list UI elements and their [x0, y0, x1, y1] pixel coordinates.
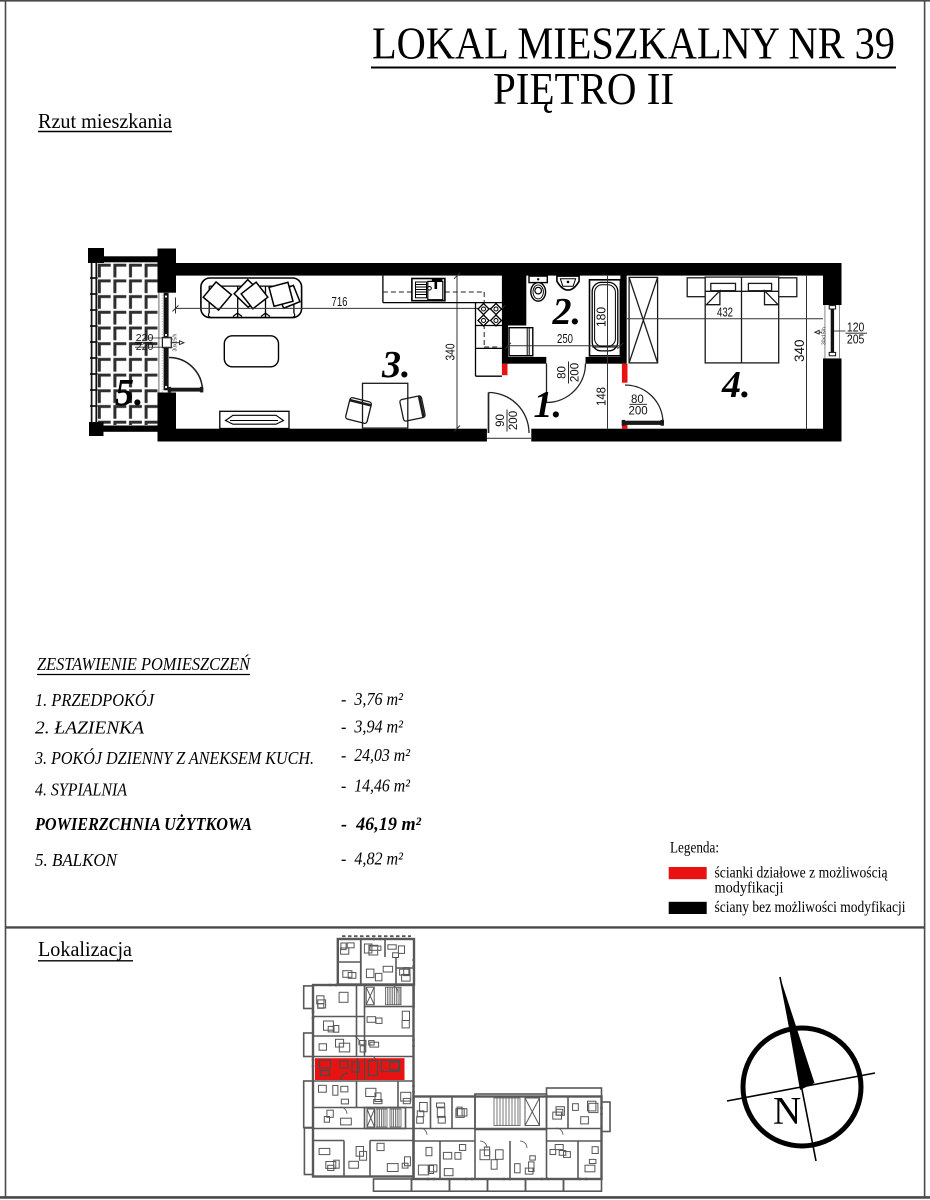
svg-text:PIĘTRO II: PIĘTRO II — [493, 63, 674, 114]
svg-text:Rzut mieszkania: Rzut mieszkania — [38, 109, 173, 133]
svg-text:148: 148 — [595, 387, 609, 406]
svg-text:5.: 5. — [115, 372, 144, 414]
svg-text:- 24,03 m²: - 24,03 m² — [341, 745, 411, 765]
svg-text:- 3,94 m²: - 3,94 m² — [341, 717, 404, 737]
svg-text:- 46,19 m²: - 46,19 m² — [341, 814, 422, 835]
svg-text:3. POKÓJ DZIENNY Z ANEKSEM KUC: 3. POKÓJ DZIENNY Z ANEKSEM KUCH. — [34, 748, 314, 768]
svg-text:Lokalizacja: Lokalizacja — [38, 937, 133, 961]
svg-text:- 3,76 m²: - 3,76 m² — [341, 689, 404, 709]
svg-text:4.: 4. — [721, 364, 751, 406]
svg-text:5. BALKON: 5. BALKON — [35, 850, 118, 870]
svg-text:200: 200 — [629, 406, 648, 418]
svg-text:205: 205 — [847, 333, 865, 347]
svg-text:30x15/h: 30x15/h — [822, 327, 828, 345]
svg-text:POWIERZCHNIA UŻYTKOWA: POWIERZCHNIA UŻYTKOWA — [34, 814, 252, 834]
svg-text:200: 200 — [570, 363, 582, 382]
svg-text:4. SYPIALNIA: 4. SYPIALNIA — [35, 780, 127, 800]
svg-text:Legenda:: Legenda: — [670, 840, 719, 857]
svg-text:1. PRZEDPOKÓJ: 1. PRZEDPOKÓJ — [35, 690, 155, 710]
svg-text:- 14,46 m²: - 14,46 m² — [341, 776, 411, 796]
svg-text:180: 180 — [595, 307, 609, 327]
svg-text:80: 80 — [557, 366, 569, 379]
svg-text:340: 340 — [792, 339, 807, 362]
svg-text:90: 90 — [495, 414, 507, 427]
svg-text:30x15/h: 30x15/h — [173, 333, 179, 351]
svg-text:432: 432 — [717, 305, 733, 319]
svg-text:N: N — [773, 1090, 801, 1133]
svg-text:2. ŁAZIENKA: 2. ŁAZIENKA — [35, 718, 144, 738]
svg-text:340: 340 — [444, 343, 458, 360]
svg-text:- 4,82 m²: - 4,82 m² — [341, 849, 404, 869]
svg-text:modyfikacji: modyfikacji — [715, 880, 785, 897]
svg-text:2.: 2. — [552, 291, 582, 333]
svg-text:ściany bez możliwości modyfika: ściany bez możliwości modyfikacji — [715, 899, 907, 916]
svg-text:ZESTAWIENIE POMIESZCZEŃ: ZESTAWIENIE POMIESZCZEŃ — [37, 654, 251, 674]
svg-text:3.: 3. — [381, 344, 411, 386]
svg-text:200: 200 — [508, 411, 520, 430]
svg-text:LOKAL MIESZKALNY NR 39: LOKAL MIESZKALNY NR 39 — [372, 18, 895, 69]
svg-text:716: 716 — [332, 295, 348, 309]
svg-text:1.: 1. — [534, 384, 563, 426]
svg-text:250: 250 — [557, 332, 573, 346]
